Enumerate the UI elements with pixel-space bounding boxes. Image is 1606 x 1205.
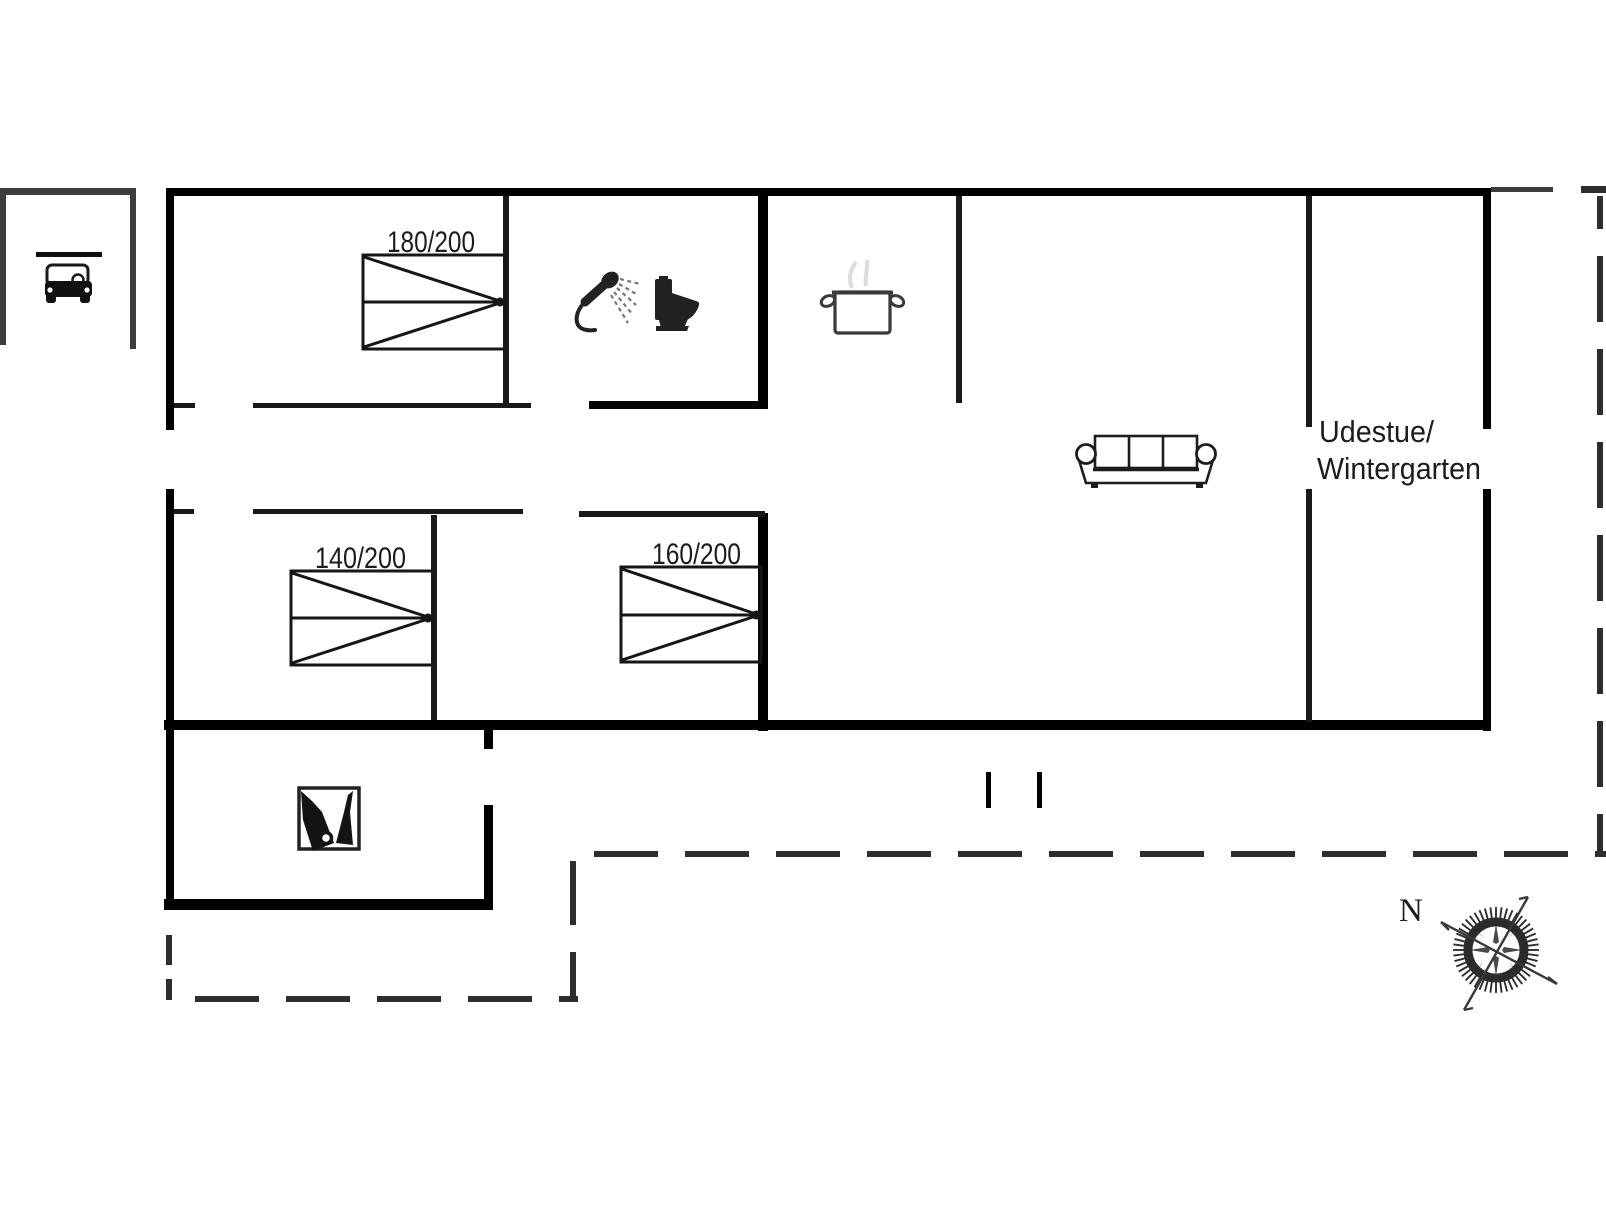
svg-text:N: N — [1399, 893, 1423, 929]
svg-text:180/200: 180/200 — [387, 226, 475, 259]
svg-text:Wintergarten: Wintergarten — [1317, 451, 1481, 486]
svg-text:160/200: 160/200 — [652, 538, 741, 571]
svg-text:Udestue/: Udestue/ — [1319, 414, 1434, 449]
svg-text:140/200: 140/200 — [315, 542, 406, 575]
